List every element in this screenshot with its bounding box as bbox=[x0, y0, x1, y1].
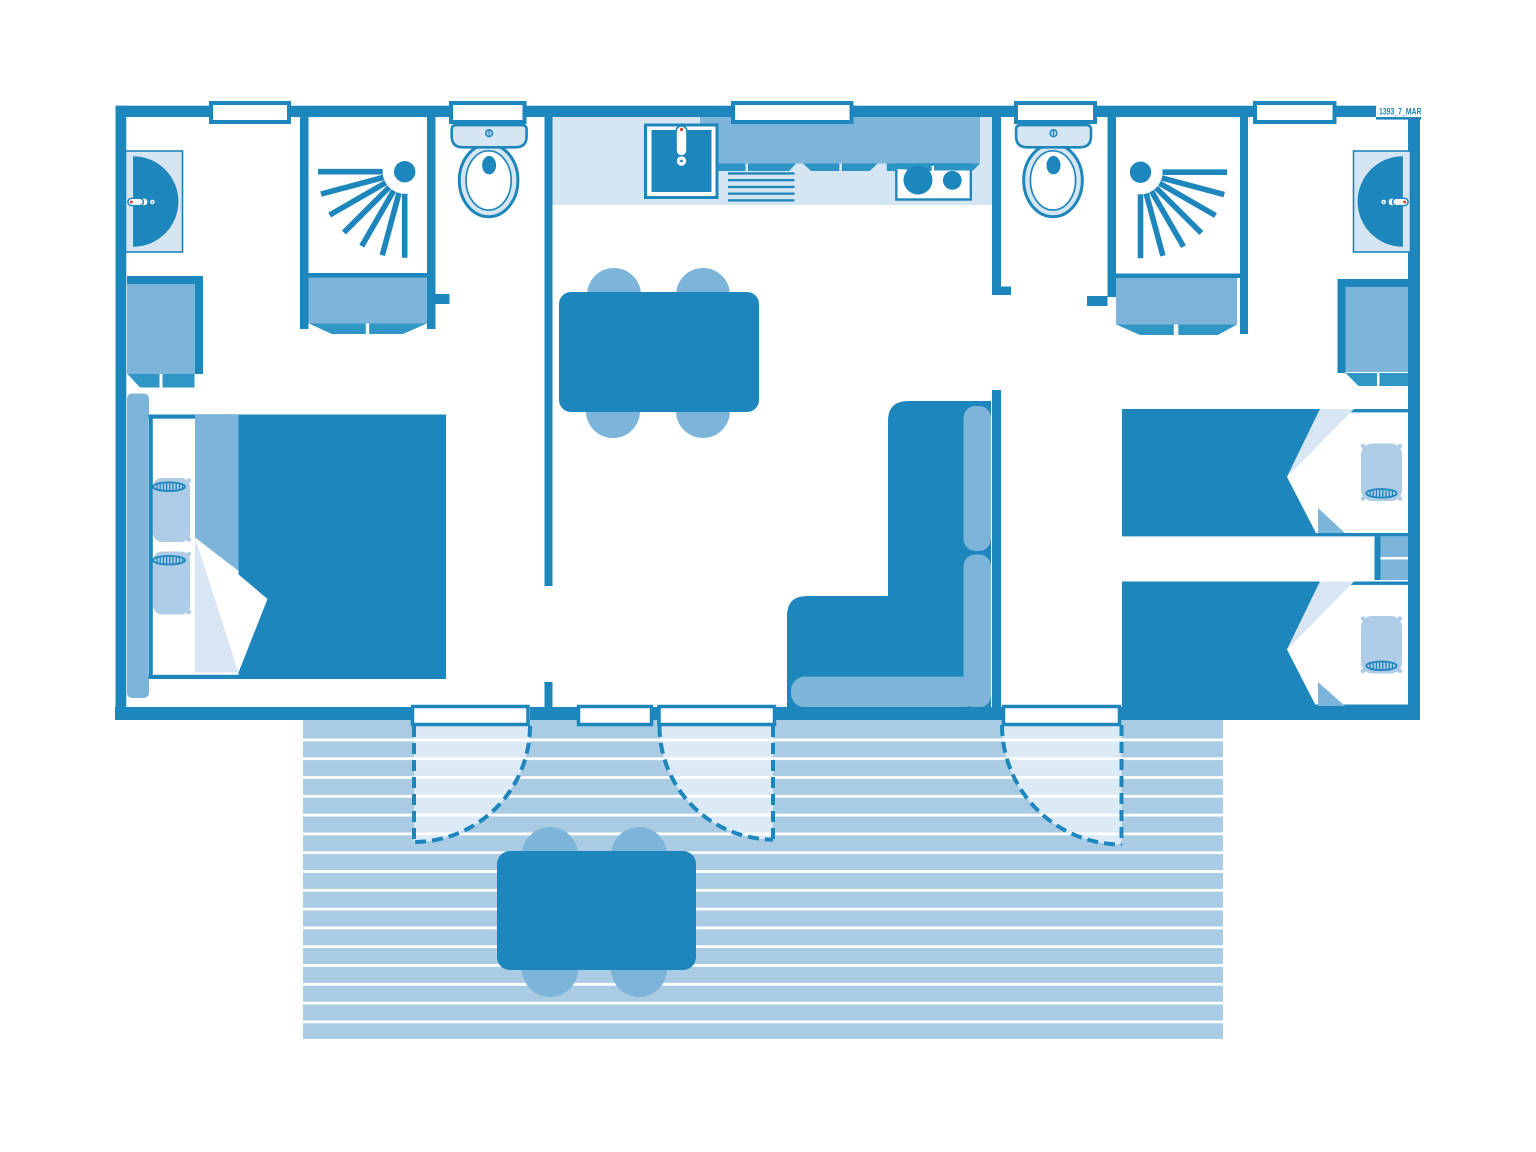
svg-text:1393_7_MAR: 1393_7_MAR bbox=[1379, 107, 1422, 117]
